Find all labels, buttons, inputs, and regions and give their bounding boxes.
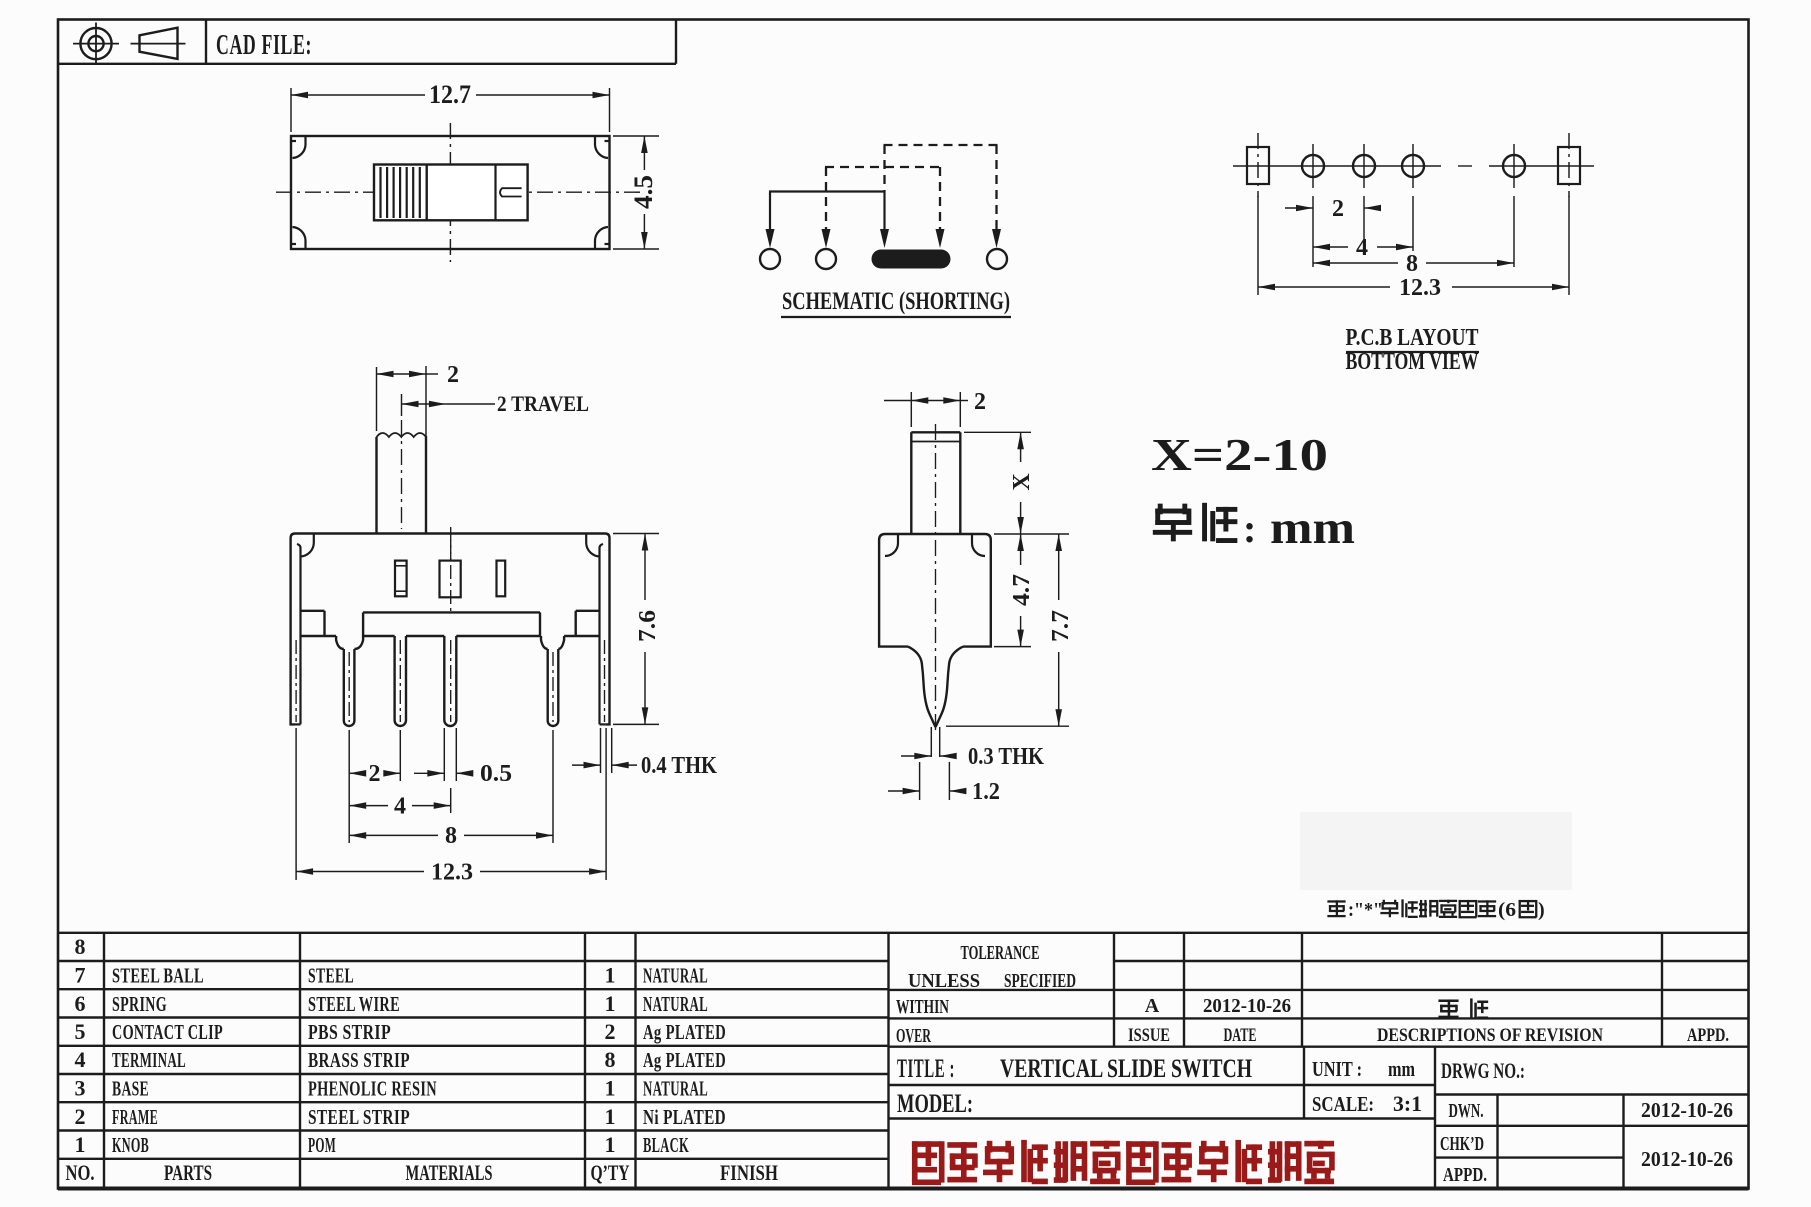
svg-text:KNOB: KNOB: [112, 1133, 149, 1157]
svg-text:NATURAL: NATURAL: [643, 964, 708, 988]
svg-text:CONTACT CLIP: CONTACT CLIP: [112, 1020, 223, 1044]
svg-text:UNLESS: UNLESS: [908, 970, 980, 992]
svg-text:3:1: 3:1: [1393, 1091, 1422, 1116]
svg-text:X: X: [1009, 473, 1035, 491]
svg-text:CAD FILE:: CAD FILE:: [216, 29, 312, 61]
svg-text:2: 2: [974, 389, 986, 415]
svg-text:Ag PLATED: Ag PLATED: [643, 1048, 726, 1072]
svg-text:1.2: 1.2: [972, 779, 1000, 805]
svg-text:8: 8: [445, 823, 457, 849]
svg-text:Q’TY: Q’TY: [591, 1160, 630, 1185]
svg-text:STEEL: STEEL: [308, 964, 354, 988]
svg-text:PARTS: PARTS: [164, 1160, 212, 1185]
svg-text:2: 2: [369, 761, 381, 787]
svg-text:7.7: 7.7: [1048, 610, 1074, 642]
svg-text:12.3: 12.3: [1399, 275, 1441, 301]
svg-text:0.3 THK: 0.3 THK: [968, 744, 1044, 770]
svg-text:NATURAL: NATURAL: [643, 992, 708, 1016]
svg-text:PBS STRIP: PBS STRIP: [308, 1020, 391, 1044]
svg-text:2012-10-26: 2012-10-26: [1641, 1147, 1733, 1171]
svg-text:NATURAL: NATURAL: [643, 1077, 708, 1101]
svg-text:BRASS STRIP: BRASS STRIP: [308, 1048, 410, 1072]
svg-text:OVER: OVER: [896, 1025, 931, 1047]
svg-text:SPRING: SPRING: [112, 992, 167, 1016]
svg-text:DWN.: DWN.: [1449, 1100, 1484, 1122]
svg-text:1: 1: [605, 991, 616, 1016]
svg-text:TITLE :: TITLE :: [897, 1054, 955, 1083]
svg-text:6: 6: [75, 991, 86, 1016]
svg-text:STEEL STRIP: STEEL STRIP: [308, 1105, 410, 1129]
svg-text:0.4 THK: 0.4 THK: [641, 753, 717, 779]
svg-text:4: 4: [1356, 235, 1368, 261]
svg-text:1: 1: [75, 1132, 86, 1157]
svg-text:8: 8: [1406, 251, 1418, 277]
svg-text:UNIT :: UNIT :: [1312, 1057, 1362, 1081]
svg-text:WITHIN: WITHIN: [896, 996, 949, 1018]
svg-text:X=2-10: X=2-10: [1151, 429, 1328, 480]
svg-text:TOLERANCE: TOLERANCE: [961, 942, 1040, 964]
svg-text:DATE: DATE: [1224, 1025, 1257, 1046]
svg-text:5: 5: [75, 1019, 86, 1044]
svg-text:1: 1: [605, 1132, 616, 1157]
svg-text:SPECIFIED: SPECIFIED: [1004, 970, 1076, 992]
svg-text:Ni PLATED: Ni PLATED: [643, 1105, 726, 1129]
svg-text:BOTTOM VIEW: BOTTOM VIEW: [1346, 349, 1479, 375]
svg-text:1: 1: [605, 1076, 616, 1101]
svg-text:): ): [1538, 899, 1545, 921]
svg-text:FINISH: FINISH: [720, 1160, 778, 1185]
svg-text:8: 8: [605, 1047, 616, 1072]
svg-text:VERTICAL SLIDE SWITCH: VERTICAL SLIDE SWITCH: [1000, 1054, 1252, 1083]
svg-text:CHK’D: CHK’D: [1440, 1133, 1484, 1155]
svg-text:7: 7: [75, 963, 86, 988]
svg-text:POM: POM: [308, 1133, 336, 1157]
svg-text:MATERIALS: MATERIALS: [406, 1160, 493, 1185]
svg-text:4: 4: [394, 794, 406, 820]
svg-text:A: A: [1145, 995, 1160, 1017]
svg-text:12.3: 12.3: [431, 860, 473, 886]
svg-text:2: 2: [447, 362, 459, 388]
svg-text:12.7: 12.7: [429, 80, 471, 109]
svg-text:2: 2: [605, 1019, 616, 1044]
svg-text:4.5: 4.5: [629, 175, 658, 209]
svg-text:DESCRIPTIONS OF REVISION: DESCRIPTIONS OF REVISION: [1377, 1025, 1603, 1046]
svg-text:1: 1: [605, 963, 616, 988]
svg-text::: :: [1243, 506, 1256, 551]
svg-text:4.7: 4.7: [1009, 574, 1035, 606]
svg-text:3: 3: [75, 1076, 86, 1101]
svg-text:ISSUE: ISSUE: [1128, 1025, 1170, 1046]
svg-text:(6: (6: [1498, 899, 1516, 921]
svg-text:MODEL:: MODEL:: [897, 1089, 973, 1118]
svg-text:APPD.: APPD.: [1443, 1164, 1487, 1186]
svg-text:STEEL WIRE: STEEL WIRE: [308, 992, 400, 1016]
svg-text:2: 2: [75, 1104, 86, 1129]
svg-text:FRAME: FRAME: [112, 1105, 158, 1129]
svg-text:NO.: NO.: [66, 1160, 95, 1185]
svg-text:TERMINAL: TERMINAL: [112, 1048, 186, 1072]
svg-text:SCALE:: SCALE:: [1312, 1092, 1374, 1116]
svg-text:2: 2: [1332, 196, 1344, 222]
svg-text:Ag PLATED: Ag PLATED: [643, 1020, 726, 1044]
svg-text:0.5: 0.5: [480, 761, 512, 787]
svg-text:DRWG NO.:: DRWG NO.:: [1441, 1058, 1525, 1083]
svg-text:7.6: 7.6: [635, 610, 661, 642]
svg-text:STEEL BALL: STEEL BALL: [112, 964, 204, 988]
svg-text:PHENOLIC RESIN: PHENOLIC RESIN: [308, 1077, 437, 1101]
svg-text:BASE: BASE: [112, 1077, 149, 1101]
svg-text:2012-10-26: 2012-10-26: [1203, 995, 1291, 1017]
svg-text:mm: mm: [1270, 502, 1355, 554]
svg-text:2 TRAVEL: 2 TRAVEL: [497, 391, 589, 416]
svg-text:APPD.: APPD.: [1687, 1025, 1729, 1046]
svg-text:1: 1: [605, 1104, 616, 1129]
svg-text:P.C.B LAYOUT: P.C.B LAYOUT: [1346, 325, 1479, 351]
svg-text::"*": :"*": [1348, 899, 1383, 921]
svg-text:BLACK: BLACK: [643, 1133, 689, 1157]
svg-text:8: 8: [75, 934, 86, 959]
svg-text:SCHEMATIC (SHORTING): SCHEMATIC (SHORTING): [782, 288, 1010, 315]
svg-text:mm: mm: [1388, 1056, 1415, 1081]
svg-text:2012-10-26: 2012-10-26: [1641, 1098, 1733, 1122]
svg-text:4: 4: [75, 1047, 86, 1072]
